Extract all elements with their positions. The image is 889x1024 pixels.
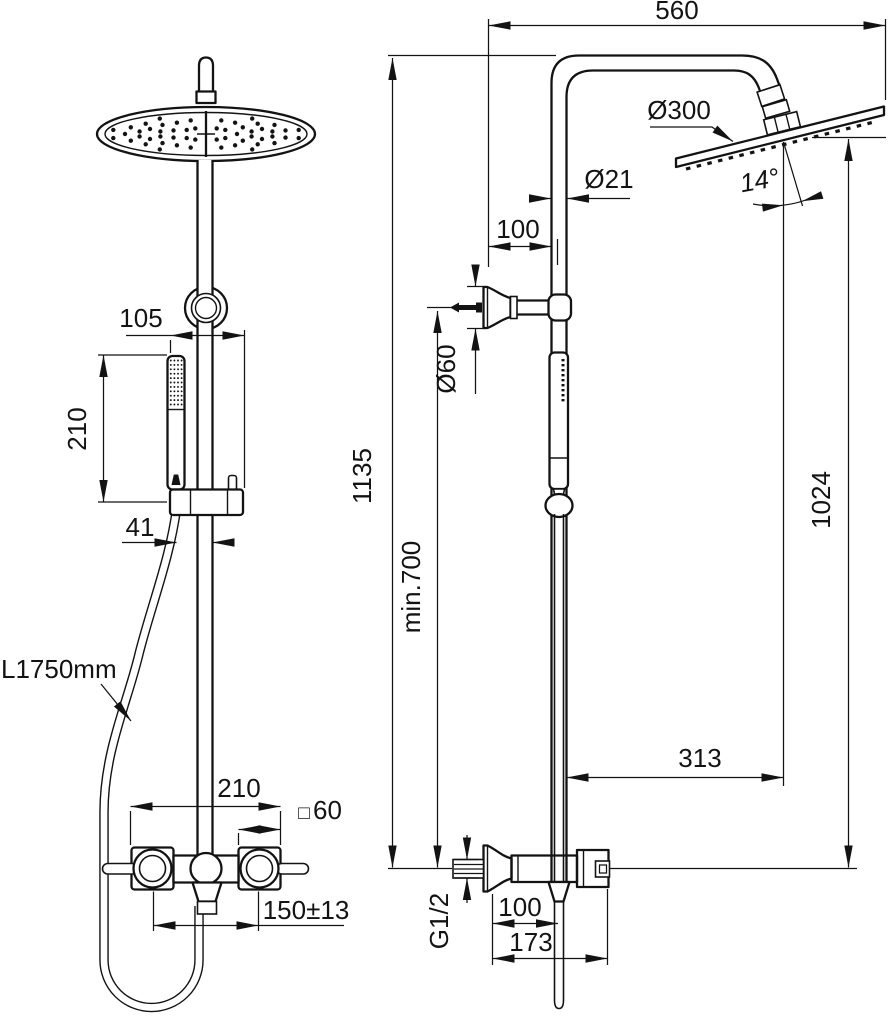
- nozzle-dot: [171, 128, 175, 132]
- nozzle-dot: [181, 382, 183, 384]
- nozzle-dot: [177, 395, 179, 397]
- pipe-top-collar: [197, 92, 216, 104]
- valve-lever-right: [277, 864, 309, 875]
- nozzle-dot: [170, 368, 172, 370]
- nozzle-dot: [173, 386, 175, 388]
- nozzle-dot: [177, 382, 179, 384]
- valve-lever-left: [103, 864, 138, 875]
- dim-150-label: 150±13: [263, 895, 350, 925]
- rail-bracket-collar: [511, 297, 518, 319]
- dim-60-label: Ø60: [431, 344, 461, 393]
- shower-hose-inner: [104, 505, 199, 1007]
- nozzle-dot: [158, 134, 162, 138]
- nozzle-dot: [181, 399, 183, 401]
- hose-nut: [546, 494, 573, 517]
- nozzle-dot: [173, 373, 175, 375]
- dim-560-label: 560: [655, 0, 698, 25]
- nozzle-dot: [173, 368, 175, 370]
- dim-min700-label: min.700: [396, 541, 426, 634]
- valve-outlet-cone-side: [549, 882, 570, 902]
- dim-313-label: 313: [678, 743, 721, 773]
- valve-cartridge-cap: [191, 853, 222, 884]
- nozzle-dot: [249, 129, 253, 133]
- nozzle-dot: [283, 128, 287, 132]
- nozzle-dot: [250, 116, 254, 120]
- mounting-screw: [450, 303, 482, 313]
- nozzle-dot: [148, 137, 152, 141]
- nozzle-dot: [111, 128, 115, 132]
- nozzle-dot: [177, 364, 179, 366]
- nozzle-dot: [181, 364, 183, 366]
- nozzle-dot: [158, 129, 162, 133]
- nozzle-dot: [123, 132, 127, 136]
- slider-holder: [170, 490, 243, 516]
- dim-1135-label: 1135: [347, 448, 377, 504]
- nozzle-dot: [111, 136, 115, 140]
- nozzle-dot: [181, 395, 183, 397]
- hand-shower-front: [168, 356, 185, 490]
- nozzle-dot: [283, 135, 287, 139]
- dim-300-leader: [650, 127, 733, 142]
- angle-ref-tilted: [784, 142, 803, 206]
- dim-210-wand-label: 210: [62, 407, 92, 450]
- nozzle-dot: [173, 399, 175, 401]
- nozzle-dot: [129, 139, 133, 143]
- nozzle-dot: [181, 386, 183, 388]
- nozzle-dot: [173, 377, 175, 379]
- nozzle-dot: [175, 121, 179, 125]
- nozzle-dot: [170, 404, 172, 406]
- nozzle-dot: [250, 147, 254, 151]
- rail-bracket-clamp: [549, 295, 572, 321]
- dim-21-label: Ø21: [584, 164, 633, 194]
- nozzle-dot: [256, 142, 260, 146]
- nozzle-dot: [177, 404, 179, 406]
- valve-handle-left-inner: [140, 856, 166, 882]
- nozzle-dot: [189, 145, 193, 149]
- nozzle-dot: [260, 127, 264, 131]
- nozzle-dot: [170, 377, 172, 379]
- nozzle-dot: [177, 360, 179, 362]
- nozzle-dot: [170, 373, 172, 375]
- dim-g12-label: G1/2: [424, 893, 454, 949]
- nozzle-dot: [170, 399, 172, 401]
- nozzle-dot: [185, 136, 189, 140]
- dim-300-label: Ø300: [647, 95, 711, 125]
- nozzle-dot: [173, 382, 175, 384]
- dim-14deg-label: 14°: [737, 162, 781, 198]
- nozzle-dot: [173, 360, 175, 362]
- valve-handle-cap: [596, 861, 610, 877]
- nozzle-dot: [158, 147, 162, 151]
- valve-outlet-nipple-front: [198, 902, 217, 915]
- nozzle-dot: [219, 118, 223, 122]
- dim-sq60-label: 60: [313, 795, 342, 825]
- nozzle-dot: [235, 132, 239, 136]
- nozzle-dot: [173, 404, 175, 406]
- nozzle-dot: [223, 128, 227, 132]
- nozzle-dot: [223, 136, 227, 140]
- nozzle-dot: [175, 143, 179, 147]
- hose-length-label: L1750mm: [1, 654, 117, 684]
- nozzle-dot: [233, 121, 237, 125]
- nozzle-dot: [177, 373, 179, 375]
- nozzle-dot: [170, 395, 172, 397]
- shower-hose-outer: [104, 505, 199, 1007]
- nozzle-dot: [215, 126, 219, 130]
- nozzle-dot: [144, 122, 148, 126]
- nozzle-dot: [181, 368, 183, 370]
- nozzle-dot: [181, 404, 183, 406]
- nozzle-dot: [181, 390, 183, 392]
- nozzle-dot: [181, 373, 183, 375]
- dim-41-label: 41: [126, 512, 155, 542]
- nozzle-dot: [177, 386, 179, 388]
- nozzle-dot: [173, 364, 175, 366]
- shower-system-dimension-drawing: 105 210 41 L1750mm 210 □ 60 150±13 560 Ø…: [0, 0, 889, 1024]
- nozzle-dot: [260, 137, 264, 141]
- dim-1024-label: 1024: [806, 471, 836, 529]
- nozzle-dot: [177, 399, 179, 401]
- nozzle-dot: [249, 134, 253, 138]
- nozzle-dot: [193, 126, 197, 130]
- valve-outlet-cone-front: [193, 883, 222, 902]
- angle-arrow-right: [802, 191, 823, 201]
- nozzle-dot: [171, 135, 175, 139]
- outlet-hose-end: [555, 1000, 564, 1009]
- dim-sq60-symbol: □: [298, 803, 310, 824]
- nozzle-dot: [297, 136, 301, 140]
- valve-handle-right-inner: [247, 856, 273, 882]
- nozzle-dot: [270, 134, 274, 138]
- nozzle-dot: [270, 129, 274, 133]
- nozzle-dot: [173, 390, 175, 392]
- nozzle-dot: [256, 122, 260, 126]
- hand-shower-side: [550, 353, 569, 490]
- nozzle-dot: [241, 139, 245, 143]
- side-view-dimensions: 560 Ø300 14° Ø21 100 Ø60 1135 min.700 10…: [347, 0, 886, 965]
- dim-100-bottom-label: 100: [498, 892, 541, 922]
- nozzle-dot: [137, 129, 141, 133]
- nozzle-dot: [193, 137, 197, 141]
- nozzle-dot: [148, 127, 152, 131]
- nozzle-dot: [160, 123, 164, 127]
- nozzle-dot: [181, 360, 183, 362]
- nozzle-dot: [129, 125, 133, 129]
- nozzle-dot: [170, 364, 172, 366]
- dim-210-valve-label: 210: [217, 773, 260, 803]
- nozzle-dot: [137, 134, 141, 138]
- nozzle-dot: [185, 128, 189, 132]
- nozzle-dot: [170, 386, 172, 388]
- rail-bracket-ring-inner: [196, 298, 217, 319]
- nozzle-dot: [272, 123, 276, 127]
- nozzle-dot: [233, 143, 237, 147]
- technical-drawing-page: 105 210 41 L1750mm 210 □ 60 150±13 560 Ø…: [0, 0, 889, 1024]
- nozzle-dot: [219, 145, 223, 149]
- nozzle-dot: [189, 118, 193, 122]
- angle-arrow-left: [762, 204, 783, 212]
- nozzle-dot: [160, 141, 164, 145]
- nozzle-dot: [177, 377, 179, 379]
- dim-173-label: 173: [509, 927, 552, 957]
- nozzle-dot: [177, 368, 179, 370]
- nozzle-dot: [170, 382, 172, 384]
- dim-105-label: 105: [119, 303, 162, 333]
- nozzle-dot: [215, 137, 219, 141]
- nozzle-dot: [158, 116, 162, 120]
- pipe-top-cap: [199, 58, 213, 94]
- nozzle-dot: [177, 390, 179, 392]
- nozzle-dot: [181, 377, 183, 379]
- nozzle-dot: [241, 125, 245, 129]
- nozzle-dot: [144, 142, 148, 146]
- nozzle-dot: [297, 128, 301, 132]
- nozzle-dot: [170, 390, 172, 392]
- nozzle-dot: [173, 395, 175, 397]
- dim-100-top-label: 100: [496, 214, 539, 244]
- nozzle-dot: [170, 360, 172, 362]
- slider-pin: [229, 476, 237, 491]
- nozzle-dot: [272, 141, 276, 145]
